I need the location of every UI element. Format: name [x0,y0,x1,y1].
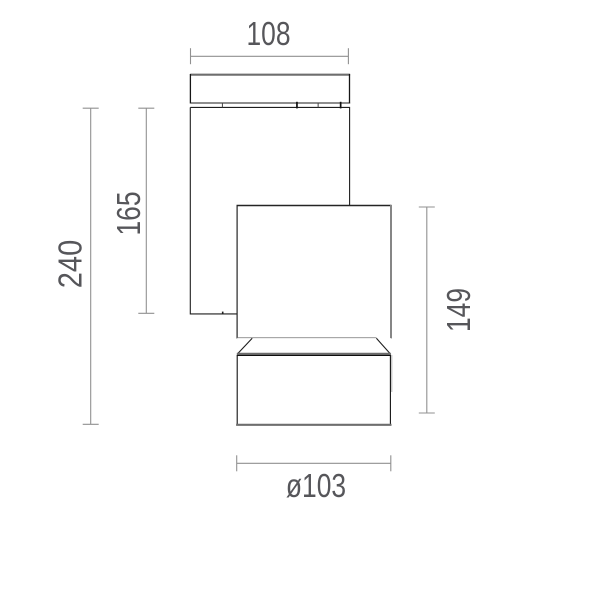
svg-text:165: 165 [111,191,147,235]
svg-text:240: 240 [52,240,89,288]
svg-text:ø103: ø103 [286,468,346,504]
svg-text:108: 108 [246,16,290,52]
svg-text:149: 149 [441,288,477,332]
